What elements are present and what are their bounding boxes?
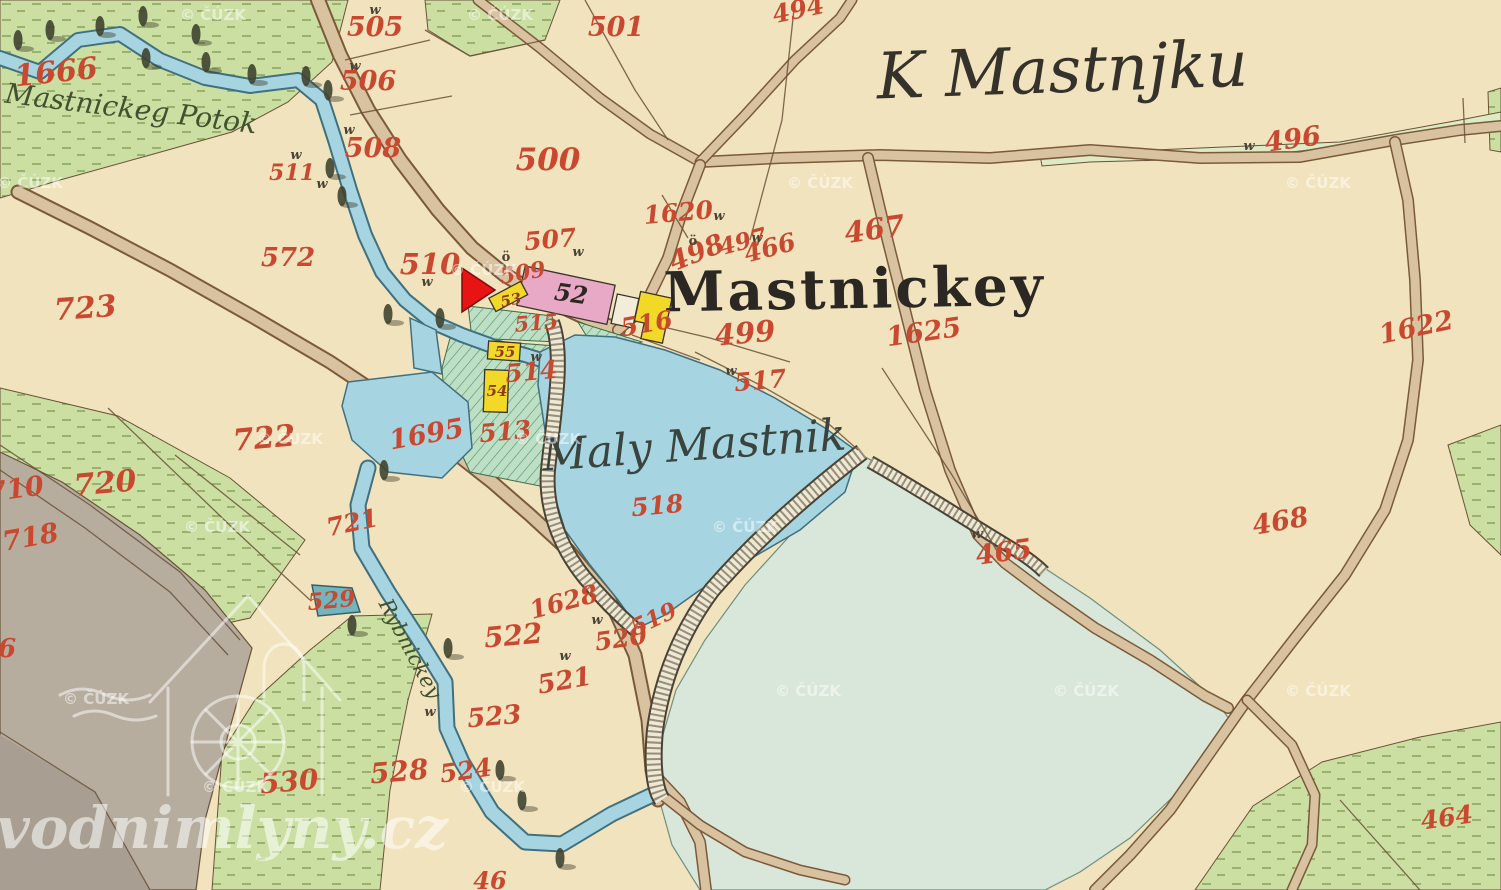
parcel-number: 723 (53, 289, 118, 328)
cuzk-watermark: © ČÚZK (450, 260, 517, 279)
w-mark: w (343, 123, 355, 138)
cuzk-watermark: © ČÚZK (180, 5, 247, 24)
cuzk-watermark: © ČÚZK (775, 681, 842, 700)
cuzk-watermark: © ČÚZK (1285, 173, 1352, 192)
w-mark: w (530, 350, 542, 365)
w-mark: w (421, 275, 433, 290)
parcel-number: 511 (269, 160, 315, 186)
w-mark: w (751, 231, 763, 246)
site-watermark: vodnimlyny.cz (0, 794, 449, 862)
w-mark: w (369, 3, 381, 18)
parcel-number: 529 (306, 585, 356, 616)
house-number: 54 (487, 382, 508, 400)
parcel-number: 506 (340, 66, 397, 97)
w-mark: w (316, 177, 328, 192)
parcel-number: 500 (516, 142, 581, 178)
cadastral-map: K MastnjkuMastnickeyMaly MastnikMastnick… (0, 0, 1501, 890)
w-mark: w (559, 649, 571, 664)
cuzk-watermark: © ČÚZK (1053, 681, 1120, 700)
w-mark: w (290, 148, 302, 163)
w-mark: w (725, 364, 737, 379)
cuzk-watermark: © ČÚZK (787, 173, 854, 192)
o-mark: ö (689, 234, 698, 249)
parcel-number: 528 (369, 753, 430, 791)
w-mark: w (1243, 139, 1255, 154)
parcel-number: 46 (473, 866, 507, 890)
w-mark: w (971, 527, 983, 542)
parcel-number: 501 (588, 12, 644, 43)
parcel-number: 523 (466, 700, 523, 735)
parcel-number: 6 (0, 634, 16, 664)
cuzk-watermark: © ČÚZK (515, 429, 582, 448)
place-label: K Mastnjku (874, 28, 1249, 115)
parcel-number: 518 (630, 489, 685, 522)
house-number: 55 (495, 343, 516, 361)
cuzk-watermark: © ČÚZK (467, 5, 534, 24)
cuzk-watermark: © ČÚZK (1285, 681, 1352, 700)
map-viewport: K MastnjkuMastnickeyMaly MastnikMastnick… (0, 0, 1501, 890)
w-mark: w (349, 59, 361, 74)
place-label: Mastnickey (663, 253, 1046, 325)
parcel-number: 515 (513, 308, 559, 337)
cuzk-watermark: © ČÚZK (459, 777, 526, 796)
cuzk-watermark: © ČÚZK (712, 517, 779, 536)
w-mark: w (713, 209, 725, 224)
parcel-number: 507 (523, 223, 578, 256)
parcel-number: 522 (483, 617, 544, 655)
parcel-number: 1620 (642, 195, 714, 230)
w-mark: w (591, 613, 603, 628)
parcel-number: 720 (72, 463, 138, 503)
house-number-script: 52 (553, 277, 590, 310)
w-mark: w (424, 705, 436, 720)
parcel-number: 572 (261, 243, 315, 273)
w-mark: w (572, 245, 584, 260)
parcel-number: 499 (713, 313, 776, 352)
cuzk-watermark: © ČÚZK (257, 429, 324, 448)
parcel-number: 517 (733, 364, 788, 397)
cuzk-watermark: © ČÚZK (184, 517, 251, 536)
cuzk-watermark: © ČÚZK (0, 173, 64, 192)
